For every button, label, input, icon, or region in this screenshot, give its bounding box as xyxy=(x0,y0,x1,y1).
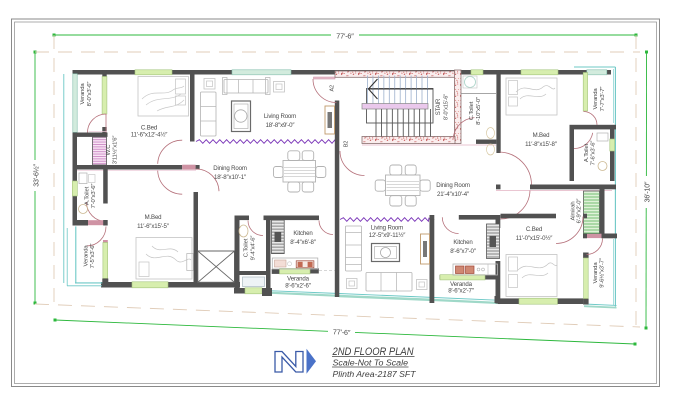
svg-text:3′11½″x1′6″: 3′11½″x1′6″ xyxy=(112,136,119,165)
svg-text:11′-0″x15′-0½″: 11′-0″x15′-0½″ xyxy=(516,235,554,242)
svg-text:Veranda: Veranda xyxy=(80,83,86,105)
svg-text:Kitchen: Kitchen xyxy=(293,230,312,237)
svg-text:8′-0″x15′-6″: 8′-0″x15′-6″ xyxy=(444,94,450,120)
svg-text:Dining Room: Dining Room xyxy=(213,165,247,172)
svg-text:C.Toilet: C.Toilet xyxy=(469,101,475,120)
svg-text:9′-6½″x3′-7″: 9′-6½″x3′-7″ xyxy=(599,258,606,288)
svg-text:8′-0″x3′-6″: 8′-0″x3′-6″ xyxy=(87,82,93,107)
svg-text:18′-8″x10′-1″: 18′-8″x10′-1″ xyxy=(214,174,247,181)
svg-text:STAIR: STAIR xyxy=(436,98,442,115)
svg-text:11′-6″x12′-4½″: 11′-6″x12′-4½″ xyxy=(131,132,169,139)
svg-text:8′-4″x6′-8″: 8′-4″x6′-8″ xyxy=(290,239,317,246)
svg-text:Scale-Not To Scale: Scale-Not To Scale xyxy=(333,358,409,367)
svg-text:33′-6½″: 33′-6½″ xyxy=(32,164,40,187)
svg-text:A.Toilet: A.Toilet xyxy=(84,186,90,205)
svg-text:8′-6″x2′-6″: 8′-6″x2′-6″ xyxy=(285,283,312,290)
svg-text:11′-6″x15′-5″: 11′-6″x15′-5″ xyxy=(137,223,170,230)
svg-text:6′-9″x2′-0″: 6′-9″x2′-0″ xyxy=(577,199,583,224)
svg-text:M.Bed: M.Bed xyxy=(533,132,550,139)
svg-text:Living Room: Living Room xyxy=(371,225,403,232)
svg-text:8′-6″x2′-7″: 8′-6″x2′-7″ xyxy=(448,288,475,295)
svg-text:B2: B2 xyxy=(344,141,350,148)
svg-text:7′-0″x3′-6″: 7′-0″x3′-6″ xyxy=(91,184,97,209)
svg-text:21′-4″x10′-4″: 21′-4″x10′-4″ xyxy=(437,191,470,198)
svg-text:Veranda: Veranda xyxy=(287,276,309,283)
svg-text:W.C: W.C xyxy=(106,144,112,156)
svg-text:A.Toilet: A.Toilet xyxy=(584,143,590,162)
svg-text:Dining Room: Dining Room xyxy=(436,182,470,189)
svg-text:M.Bed: M.Bed xyxy=(145,214,162,221)
svg-text:11′-8″x15′-8″: 11′-8″x15′-8″ xyxy=(525,141,558,148)
svg-text:Veranda: Veranda xyxy=(84,245,90,267)
svg-text:Veranda: Veranda xyxy=(593,262,599,284)
svg-text:36′-10″: 36′-10″ xyxy=(645,181,652,202)
svg-text:A2: A2 xyxy=(330,85,336,92)
svg-text:12′-5″x9′-11½″: 12′-5″x9′-11½″ xyxy=(369,232,407,239)
svg-text:Living Room: Living Room xyxy=(264,113,296,120)
svg-text:C.Bed: C.Bed xyxy=(141,125,157,132)
svg-text:Kitchen: Kitchen xyxy=(453,239,472,246)
svg-text:8′-10″x5′-0″: 8′-10″x5′-0″ xyxy=(476,97,482,125)
svg-text:77′-6″: 77′-6″ xyxy=(336,31,354,40)
svg-text:2ND FLOOR PLAN: 2ND FLOOR PLAN xyxy=(332,346,414,358)
svg-text:Plinth Area-2187 SFT: Plinth Area-2187 SFT xyxy=(333,370,417,379)
svg-text:C.Bed: C.Bed xyxy=(526,226,542,233)
svg-text:7′-7″x3′-7″: 7′-7″x3′-7″ xyxy=(600,87,606,112)
svg-text:7′-5″x3′-6″: 7′-5″x3′-6″ xyxy=(90,244,96,269)
svg-text:18′-8″x9′-0″: 18′-8″x9′-0″ xyxy=(266,122,296,129)
svg-text:7′-6″x3′-6″: 7′-6″x3′-6″ xyxy=(591,141,597,166)
svg-text:9′-4″x4′-6″: 9′-4″x4′-6″ xyxy=(251,236,257,261)
svg-text:C.Toilet: C.Toilet xyxy=(244,238,250,257)
svg-text:8′-6″x7′-0″: 8′-6″x7′-0″ xyxy=(450,248,477,255)
svg-text:Veranda: Veranda xyxy=(593,88,599,110)
svg-text:77′-6″: 77′-6″ xyxy=(333,327,351,337)
